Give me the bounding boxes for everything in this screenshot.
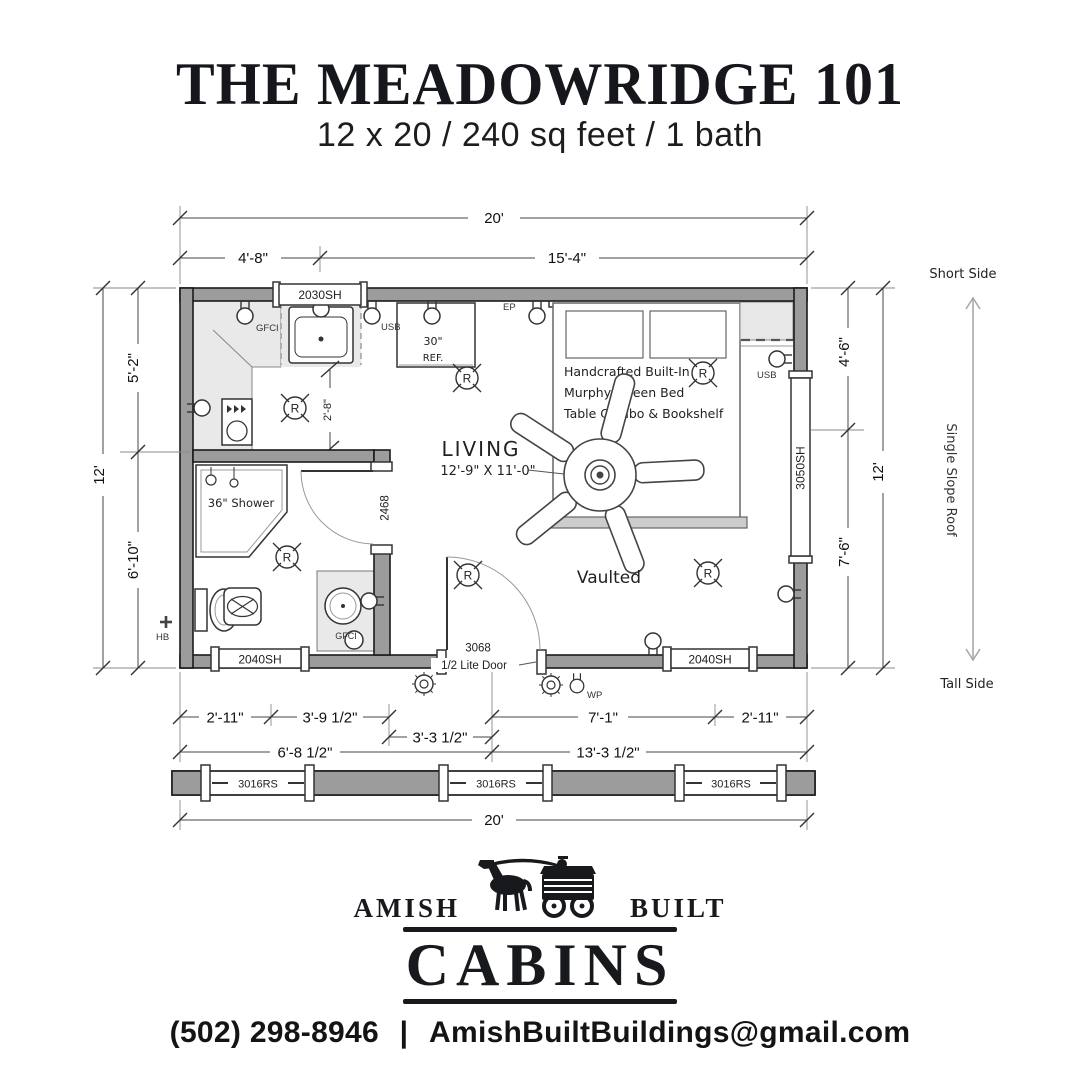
horse-and-buggy-icon	[470, 852, 620, 924]
dim-b1-5: 2'-11"	[741, 710, 778, 727]
dim-b2-1: 6'-8 1/2"	[278, 745, 333, 762]
bathroom-door: 2468	[301, 462, 392, 554]
recessed-light-icon	[281, 394, 309, 422]
flyer: { "header": { "title": "THE MEADOWRIDGE …	[0, 0, 1080, 1080]
bath-door-label: 2468	[380, 495, 392, 521]
dim-top: 20' 4'-8" 15'-4"	[173, 206, 814, 284]
hb-label: HB	[156, 632, 169, 643]
recessed-light-icon	[453, 364, 481, 392]
dim-left-total: 12'	[91, 465, 108, 485]
logo-amish-text: AMISH	[353, 895, 460, 922]
logo-cabins-text: CABINS	[0, 935, 1080, 996]
dim-right-upper: 4'-6"	[836, 337, 853, 367]
email-address: AmishBuiltBuildings@gmail.com	[429, 1016, 910, 1049]
recessed-light-icon	[694, 559, 722, 587]
pillow	[566, 311, 643, 358]
porch-light-icon	[412, 672, 436, 696]
entry-door-size: 3068	[465, 643, 491, 655]
shower-label: 36" Shower	[208, 496, 275, 510]
window-living-bottom: 2040SH	[663, 647, 757, 671]
usb-label: USB	[757, 370, 777, 381]
contact-line: (502) 298-8946 | AmishBuiltBuildings@gma…	[0, 1016, 1080, 1050]
recessed-light-icon	[273, 543, 301, 571]
entry-door: 3068 1/2 Lite Door	[431, 557, 546, 674]
gfci-label: GFCI	[256, 323, 279, 334]
dim-top-right: 15'-4"	[548, 250, 586, 267]
dim-b1-3: 3'-3 1/2"	[413, 730, 468, 747]
dim-bottom: 2'-11" 3'-9 1/2" 3'-3 1/2" 7'-1" 2'-11" …	[173, 672, 814, 762]
hose-bib-icon	[160, 616, 172, 628]
wp-outlet-icon	[570, 673, 584, 693]
dim-left-upper: 5'-2"	[125, 353, 142, 383]
dim-top-left: 4'-8"	[238, 250, 268, 267]
dim-top-total: 20'	[484, 210, 504, 227]
window-right-label: 3050SH	[794, 446, 808, 489]
dim-b1-1: 2'-11"	[206, 710, 243, 727]
dim-b1-4: 7'-1"	[588, 710, 618, 727]
dim-right: 4'-6" 7'-6" 12'	[811, 281, 895, 675]
usb-label: USB	[381, 322, 401, 333]
roof-annotation: Short Side Single Slope Roof Tall Side	[929, 267, 996, 692]
dim-bottom-total-label: 20'	[484, 812, 504, 829]
fridge-label: REF.	[423, 353, 444, 364]
dim-bottom-total: 20'	[173, 800, 814, 830]
dim-left: 12' 5'-2" 6'-10"	[91, 281, 190, 675]
living-room-size: 12'-9" X 11'-0"	[440, 464, 535, 479]
wp-label: WP	[587, 690, 602, 701]
pillow	[650, 311, 726, 358]
logo-built-text: BUILT	[630, 895, 727, 922]
elevation-window-label: 3016RS	[476, 779, 516, 791]
dim-b1-2: 3'-9 1/2"	[303, 710, 358, 727]
elevation-window-label: 3016RS	[711, 779, 751, 791]
fridge-width-label: 30"	[423, 335, 442, 348]
roof-tall-side-label: Tall Side	[939, 677, 993, 692]
phone-number: (502) 298-8946	[170, 1016, 379, 1049]
window-right: 3050SH	[789, 371, 812, 563]
dim-right-total: 12'	[870, 462, 887, 482]
window-bath-bottom: 2040SH	[211, 647, 309, 671]
porch-light-icon	[539, 673, 563, 697]
vaulted-label: Vaulted	[577, 568, 641, 588]
kitchen-sink	[289, 301, 353, 363]
dim-right-lower: 7'-6"	[836, 537, 853, 567]
window-kitchen-label: 2030SH	[298, 288, 341, 302]
dim-counter-depth: 2'-8"	[319, 361, 339, 457]
roof-short-side-label: Short Side	[929, 267, 996, 282]
elevation-window-label: 3016RS	[238, 779, 278, 791]
corner-shelf	[740, 302, 793, 346]
dim-b2-2: 13'-3 1/2"	[576, 745, 639, 762]
window-living-label: 2040SH	[688, 653, 731, 667]
entry-door-type: 1/2 Lite Door	[441, 660, 507, 672]
dim-left-lower: 6'-10"	[125, 541, 142, 579]
outlet-icon	[769, 351, 792, 367]
range-appliance	[222, 399, 252, 445]
tall-side-elevation: 3016RS 3016RS 3016RS	[172, 765, 815, 801]
bed-note-line3: Table Combo & Bookshelf	[563, 406, 724, 421]
living-room-label: LIVING	[441, 437, 520, 461]
exhaust-fan-icon	[224, 588, 261, 625]
outlet-icon	[529, 301, 545, 324]
recessed-light-icon	[454, 561, 482, 589]
recessed-light-icon	[689, 359, 717, 387]
logo-divider-bottom	[403, 999, 677, 1004]
ep-label: EP	[503, 302, 516, 313]
roof-slope-label: Single Slope Roof	[943, 423, 958, 537]
contact-separator: |	[400, 1016, 409, 1049]
vanity-gfci-label: GFCI	[335, 631, 357, 641]
living-area: Handcrafted Built-In Murphy Queen Bed Ta…	[440, 299, 793, 588]
window-kitchen: 2030SH	[273, 282, 367, 307]
outlet-icon	[645, 633, 661, 656]
vanity: GFCI	[317, 571, 375, 651]
counter-depth-label: 2'-8"	[322, 399, 334, 421]
brand-logo: AMISH	[0, 852, 1080, 1007]
window-bath-label: 2040SH	[238, 653, 281, 667]
